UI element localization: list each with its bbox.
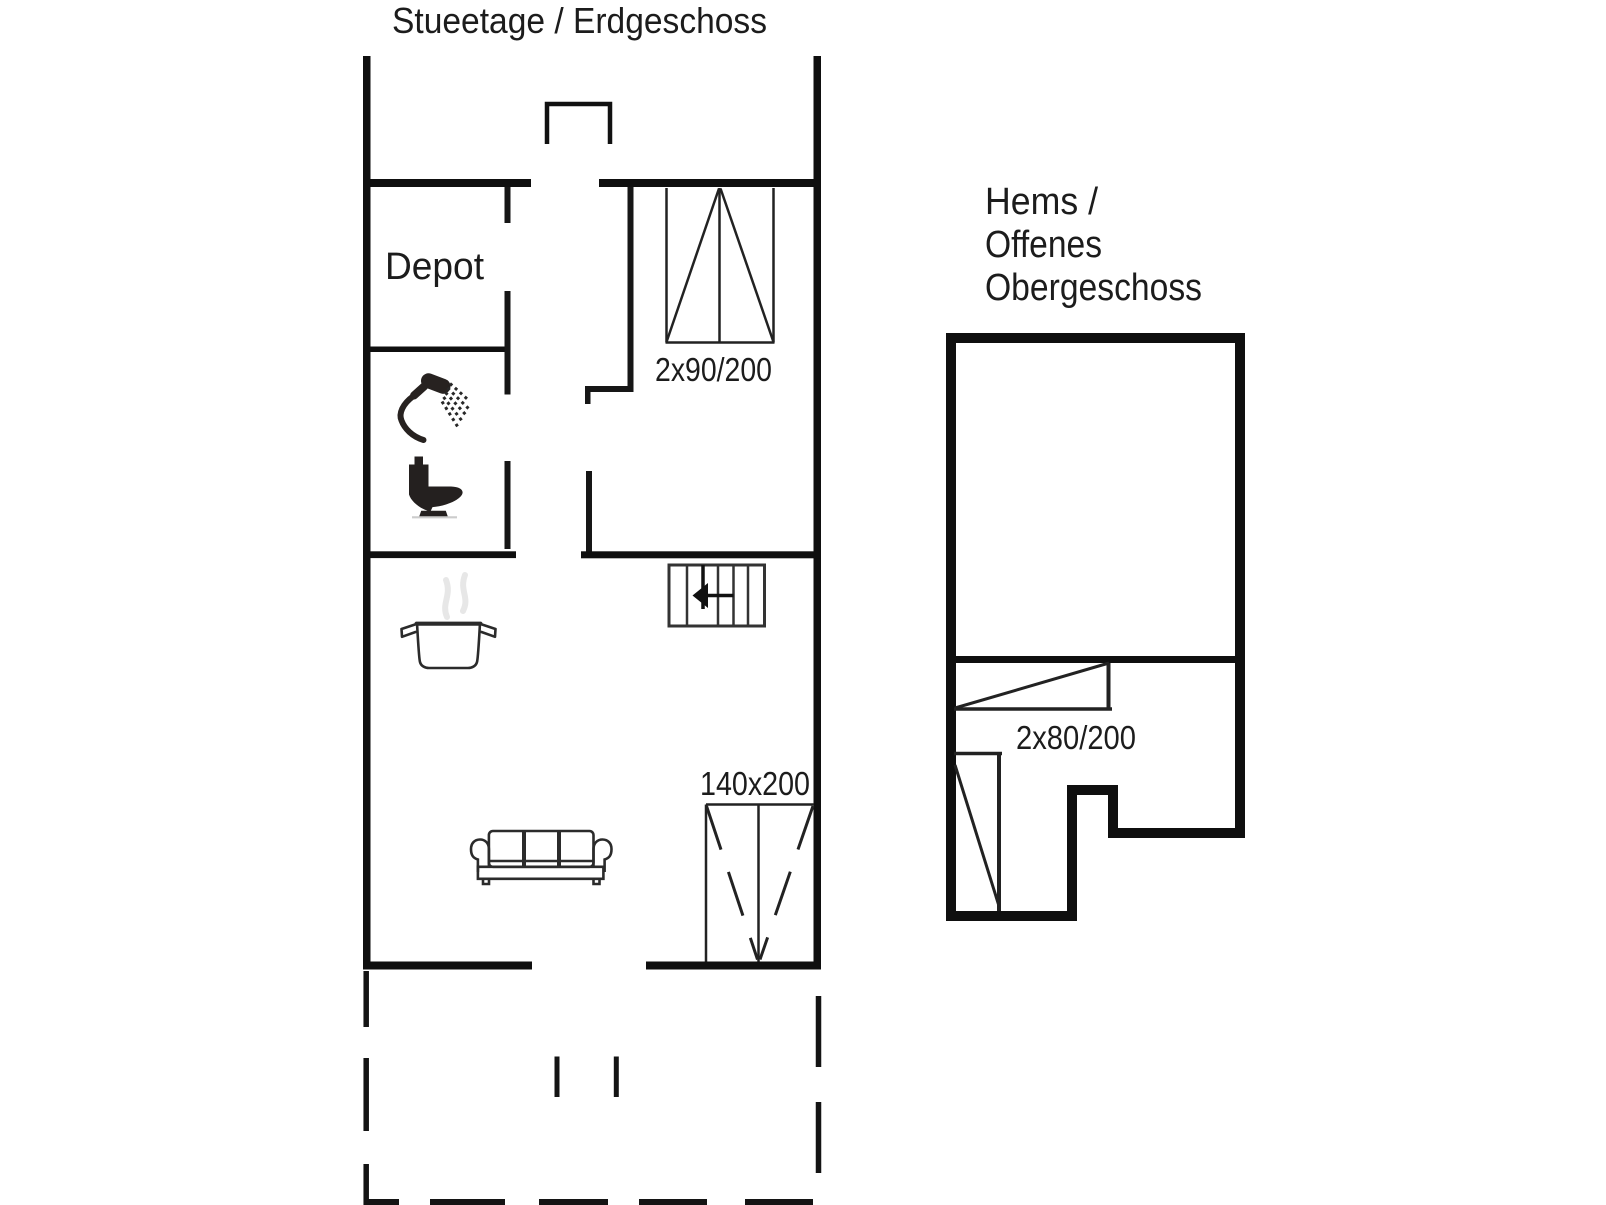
svg-text:2x90/200: 2x90/200 (655, 351, 772, 388)
svg-text:Depot: Depot (385, 246, 484, 288)
svg-text:Stueetage / Erdgeschoss: Stueetage / Erdgeschoss (392, 0, 767, 41)
svg-text:Hems /: Hems / (985, 181, 1098, 223)
svg-text:2x80/200: 2x80/200 (1016, 719, 1136, 756)
svg-text:Obergeschoss: Obergeschoss (985, 267, 1202, 309)
svg-text:Offenes: Offenes (985, 224, 1102, 266)
svg-text:140x200: 140x200 (700, 765, 810, 802)
